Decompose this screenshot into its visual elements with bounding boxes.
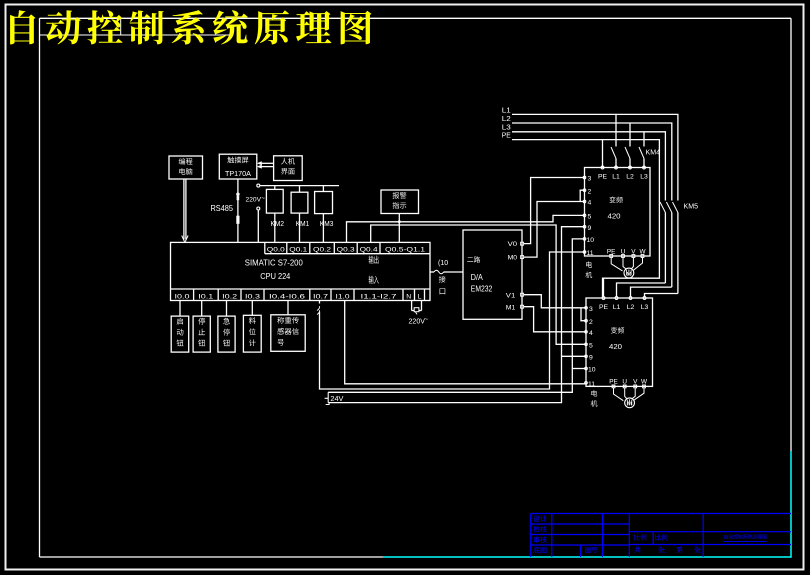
svg-text:220V: 220V: [246, 196, 262, 203]
svg-text:PE: PE: [502, 132, 511, 139]
svg-text:V0: V0: [508, 241, 518, 248]
svg-text:L3: L3: [640, 174, 648, 181]
svg-text:KM1: KM1: [296, 219, 310, 228]
svg-text:I1.1-I2.7: I1.1-I2.7: [361, 293, 397, 300]
svg-text:9: 9: [588, 225, 592, 232]
svg-text:L2: L2: [626, 174, 634, 181]
svg-text:L1: L1: [613, 304, 621, 311]
svg-text:Q0.5-Q1.1: Q0.5-Q1.1: [385, 246, 425, 253]
svg-text:2: 2: [588, 188, 592, 195]
svg-text:Q0.1: Q0.1: [289, 246, 307, 253]
svg-text:KM4: KM4: [646, 148, 661, 157]
svg-text:KM2: KM2: [271, 219, 285, 228]
svg-text:PE: PE: [599, 304, 609, 311]
svg-text:EM232: EM232: [471, 285, 493, 294]
svg-text:I0.4-I0.6: I0.4-I0.6: [269, 293, 305, 300]
svg-text:L3: L3: [641, 304, 649, 311]
svg-text:D/A: D/A: [471, 273, 484, 282]
svg-text:~: ~: [425, 316, 429, 323]
svg-text:2: 2: [589, 319, 593, 326]
svg-text:V1: V1: [506, 292, 516, 299]
svg-text:Q0.4: Q0.4: [360, 246, 378, 253]
svg-text:I0.1: I0.1: [198, 293, 213, 300]
svg-text:I0.2: I0.2: [222, 293, 237, 300]
svg-text:Q0.0: Q0.0: [267, 246, 285, 253]
svg-text:L2: L2: [502, 116, 511, 123]
svg-text:10: 10: [587, 237, 595, 244]
svg-text:24V: 24V: [330, 394, 343, 403]
svg-text:KM3: KM3: [320, 219, 334, 228]
svg-text:PE: PE: [598, 174, 608, 181]
svg-text:L: L: [418, 293, 422, 300]
svg-text:M1: M1: [506, 304, 516, 311]
svg-text:4: 4: [589, 330, 593, 337]
svg-text:L2: L2: [627, 304, 635, 311]
svg-text:Q0.3: Q0.3: [337, 246, 355, 253]
svg-text:I0.3: I0.3: [245, 293, 260, 300]
svg-text:11: 11: [587, 250, 594, 257]
svg-text:4: 4: [588, 200, 592, 207]
svg-text:I0.7: I0.7: [313, 293, 328, 300]
svg-text:9: 9: [589, 355, 593, 362]
svg-text:220V: 220V: [409, 318, 426, 325]
svg-text:RS485: RS485: [211, 204, 234, 213]
svg-text:Q0.2: Q0.2: [313, 246, 331, 253]
svg-text:I0.0: I0.0: [175, 293, 190, 300]
svg-text:M0: M0: [508, 255, 518, 262]
svg-text:I1.0: I1.0: [336, 293, 350, 300]
svg-text:KM5: KM5: [684, 202, 699, 211]
svg-text:11: 11: [588, 381, 595, 388]
svg-text:CPU 224: CPU 224: [260, 271, 290, 281]
svg-text:3: 3: [589, 306, 593, 313]
svg-text:(10: (10: [438, 260, 448, 267]
svg-text:L3: L3: [502, 125, 511, 132]
svg-text:5: 5: [588, 214, 592, 221]
svg-text:420: 420: [609, 342, 622, 351]
svg-text:SIMATIC S7-200: SIMATIC S7-200: [245, 258, 303, 268]
svg-text:~: ~: [261, 195, 265, 202]
svg-text:10: 10: [588, 367, 596, 374]
svg-text:5: 5: [589, 343, 593, 350]
svg-text:L1: L1: [502, 107, 511, 114]
svg-text:420: 420: [608, 212, 621, 221]
svg-text:N: N: [406, 293, 411, 300]
svg-text:TP170A: TP170A: [225, 169, 251, 178]
svg-text:3: 3: [588, 176, 592, 183]
svg-text:L1: L1: [612, 174, 620, 181]
